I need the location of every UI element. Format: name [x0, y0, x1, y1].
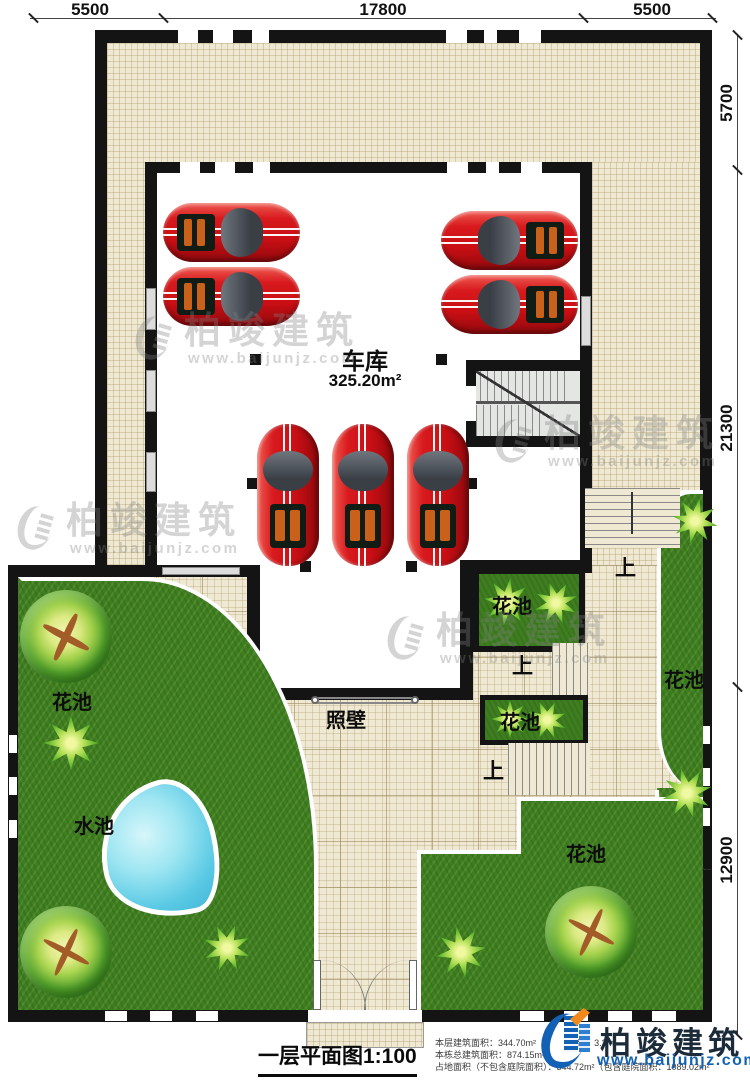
car-engine: [526, 222, 564, 259]
tree-icon: [20, 906, 112, 998]
watermark-company: 柏竣建筑: [544, 415, 720, 453]
car-windshield: [478, 216, 520, 265]
watermark-site: www.baijunjz.com: [188, 350, 360, 367]
column-marker: [436, 354, 447, 365]
watermark-site: www.baijunjz.com: [440, 650, 612, 667]
sports-car-icon: [441, 275, 578, 334]
label-stairs-up: 上: [615, 552, 636, 582]
tree-icon: [20, 590, 112, 683]
screen-wall-end: [411, 696, 419, 704]
garage-window: [215, 162, 235, 173]
car-engine: [270, 504, 306, 548]
label-stairs-up: 上: [483, 755, 504, 785]
dim-top-center: 17800: [343, 0, 423, 20]
stair-arrow: [631, 492, 633, 534]
watermark-logo-icon: [131, 312, 176, 364]
fence-gap: [702, 768, 710, 786]
terrace-north: [107, 43, 700, 162]
watermark: 柏竣建筑 www.baijunjz.com: [390, 612, 612, 667]
sports-car-icon: [332, 424, 394, 566]
car-windshield: [338, 451, 388, 491]
info-floor-area: 本层建筑面积：344.70m²: [435, 1038, 536, 1048]
window: [178, 30, 198, 43]
window: [446, 30, 467, 43]
sports-car-icon: [163, 203, 300, 262]
watermark: 柏竣建筑 www.baijunjz.com: [20, 502, 242, 557]
outdoor-stairs-low: [508, 743, 590, 795]
watermark-site: www.baijunjz.com: [70, 540, 242, 557]
watermark: 柏竣建筑 www.baijunjz.com: [498, 415, 720, 470]
window: [484, 30, 497, 43]
room-area-garage: 325.20m²: [300, 371, 430, 391]
garden-southeast: [417, 850, 520, 1013]
garage-window: [521, 162, 542, 173]
brand-website: www.baijunjz.com: [597, 1052, 750, 1070]
dim-top-right: 5500: [624, 0, 680, 20]
label-water-pool: 水池: [74, 810, 114, 839]
watermark-logo-icon: [383, 612, 428, 664]
fence-gap: [9, 735, 17, 753]
garage-window-west: [146, 452, 156, 492]
watermark-site: www.baijunjz.com: [548, 453, 720, 470]
path-edge: [417, 850, 421, 1013]
sports-car-icon: [441, 211, 578, 270]
garage-window-east: [581, 296, 591, 346]
gate-opening: [308, 1010, 422, 1022]
label-flower-bed: 花池: [566, 838, 606, 867]
label-flower-bed: 花池: [500, 706, 540, 735]
floor-plan: 车库 325.20m² 花池 水池 花池 花池 花池 花池 上 上 上 照壁: [0, 0, 750, 1080]
car-windshield: [263, 451, 313, 491]
window: [252, 30, 269, 43]
garage-window: [486, 162, 499, 173]
fence-gap: [196, 1011, 218, 1021]
garage-window-west: [146, 370, 156, 412]
sports-car-icon: [407, 424, 469, 566]
fence-gap: [702, 726, 710, 744]
screen-wall-end: [311, 696, 319, 704]
watermark-company: 柏竣建筑: [184, 312, 360, 350]
path-edge: [417, 850, 521, 854]
stairwell-wall-stub: [466, 421, 476, 447]
garage-window: [447, 162, 468, 173]
path-edge: [517, 797, 521, 854]
column-marker: [406, 561, 417, 572]
dim-right-2: 21300: [717, 395, 737, 461]
watermark-logo-icon: [491, 415, 536, 467]
car-engine: [345, 504, 381, 548]
car-windshield: [221, 208, 263, 257]
sports-car-icon: [257, 424, 319, 566]
company-logo-icon: [540, 1008, 598, 1074]
tree-icon: [545, 886, 637, 978]
car-windshield: [478, 280, 520, 329]
label-flower-bed: 花池: [664, 664, 704, 693]
label-screen-wall: 照壁: [326, 704, 366, 733]
drawing-title: 一层平面图1:100: [258, 1040, 417, 1077]
logo-building: [579, 1024, 590, 1052]
garage-window: [180, 162, 200, 173]
garden-wall-top: [8, 565, 145, 577]
fence-gap: [150, 1011, 172, 1021]
dim-right-1: 5700: [717, 76, 737, 130]
watermark: 柏竣建筑 www.baijunjz.com: [138, 312, 360, 367]
gate-door-leaf: [313, 960, 321, 1010]
stairwell-wall-stub: [466, 360, 476, 386]
window: [519, 30, 541, 43]
fence-gap: [9, 777, 17, 795]
watermark-company: 柏竣建筑: [66, 502, 242, 540]
car-engine: [526, 286, 564, 323]
label-flower-bed: 花池: [52, 686, 92, 715]
divider-window: [162, 567, 240, 575]
dim-top-left: 5500: [62, 0, 118, 20]
watermark-company: 柏竣建筑: [436, 612, 612, 650]
fence-gap: [105, 1011, 127, 1021]
wall-west: [95, 30, 107, 577]
car-engine: [177, 214, 215, 251]
fence-gap: [9, 820, 17, 838]
dimension-line-right: [737, 35, 738, 1035]
car-windshield: [413, 451, 463, 491]
window: [213, 30, 233, 43]
dim-right-3: 12900: [717, 827, 737, 893]
gate-door-leaf: [409, 960, 417, 1010]
screen-wall-line: [317, 697, 413, 704]
watermark-logo-icon: [13, 502, 58, 554]
car-engine: [420, 504, 456, 548]
stairwell-wall-top: [466, 360, 592, 371]
garage-window: [253, 162, 270, 173]
